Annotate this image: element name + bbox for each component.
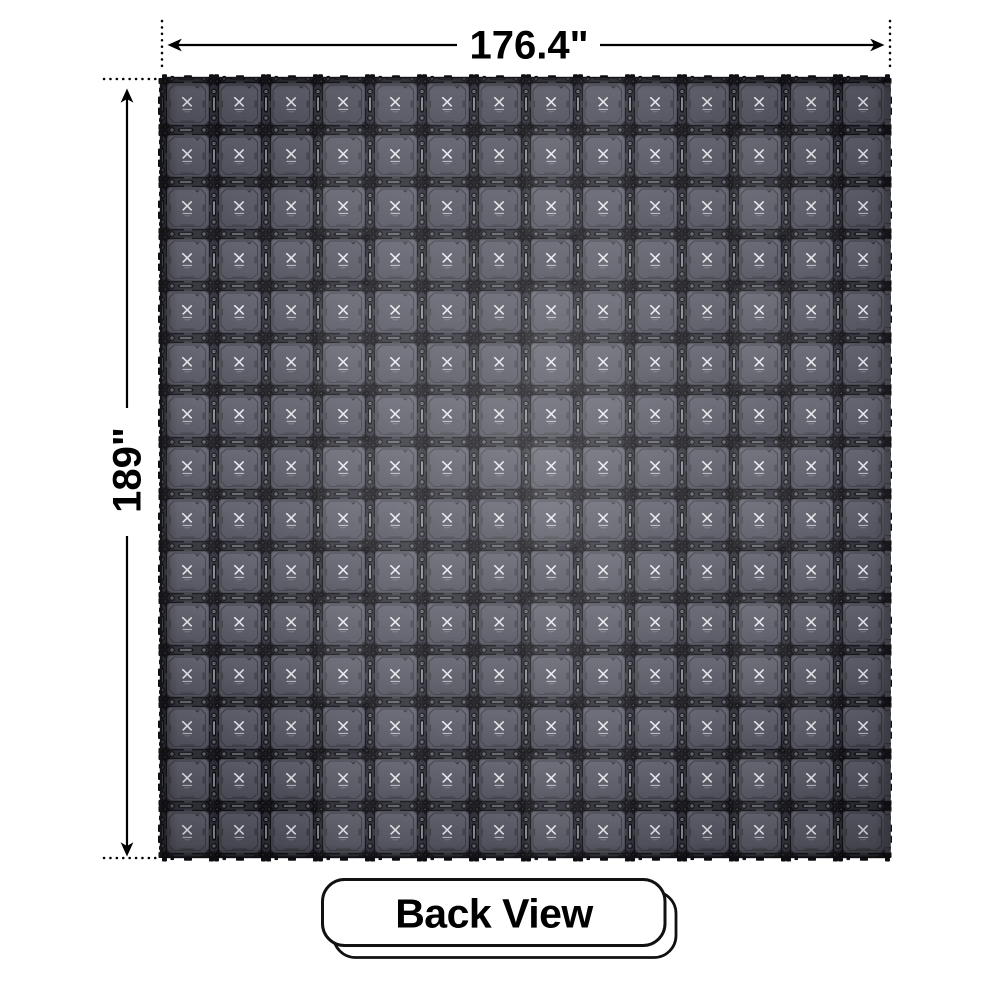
svg-text:176.4": 176.4" bbox=[469, 24, 588, 68]
svg-text:189": 189" bbox=[106, 427, 150, 513]
svg-text:Back View: Back View bbox=[395, 891, 593, 937]
